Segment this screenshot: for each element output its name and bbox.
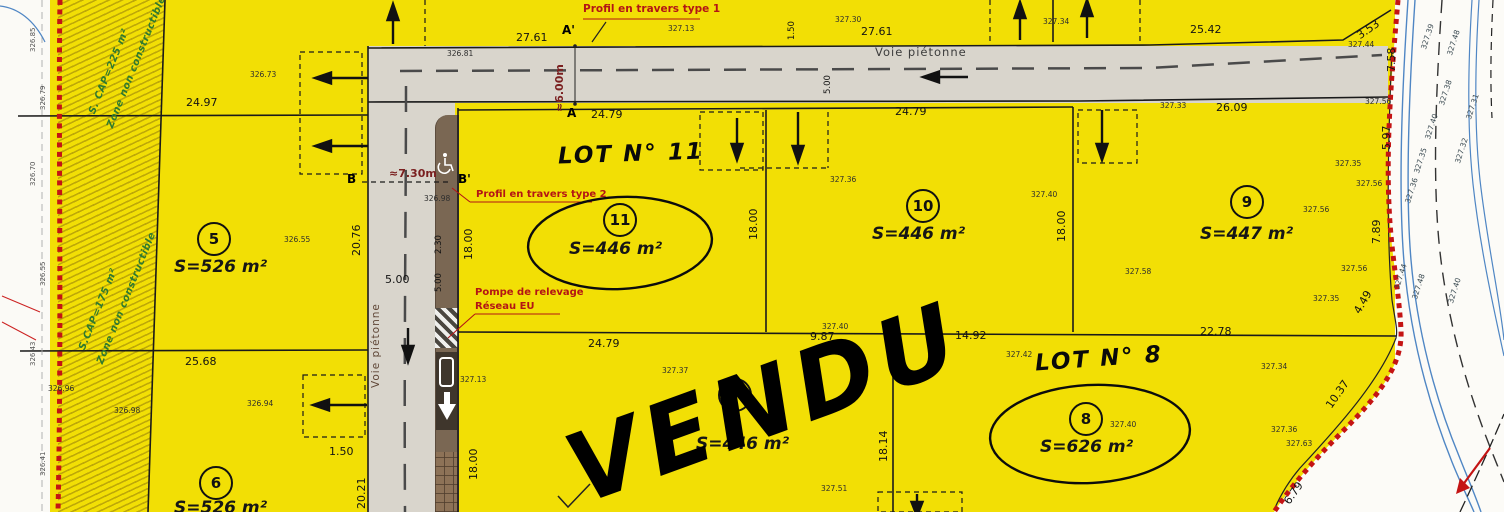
dim-label: 24.79 bbox=[895, 106, 927, 117]
dim-label: 27.61 bbox=[516, 32, 548, 43]
spot-elevation: 327.34 bbox=[1043, 18, 1069, 26]
road-name-horizontal: Voie piétonne bbox=[875, 47, 967, 59]
dim-label: 5.00 bbox=[435, 273, 444, 292]
margin-elevation: 326.41 bbox=[40, 452, 47, 477]
dim-label: 20.21 bbox=[356, 478, 367, 510]
spot-elevation: 327.51 bbox=[821, 485, 847, 493]
spot-elevation: 327.40 bbox=[1031, 191, 1057, 199]
dim-label: 1.50 bbox=[329, 446, 354, 457]
lot-callout-11: LOT N° 11 bbox=[558, 138, 705, 169]
dim-label: 24.79 bbox=[591, 109, 623, 120]
dim-label: 26.09 bbox=[1216, 102, 1248, 113]
pump-note-line2: Réseau EU bbox=[475, 302, 535, 312]
dim-label: 18.00 bbox=[748, 209, 759, 241]
dim-label: 24.79 bbox=[588, 338, 620, 349]
dim-label: 7.89 bbox=[1371, 220, 1382, 245]
lot-area-9: S=447 m² bbox=[1200, 224, 1293, 244]
point-label-b-prime: B' bbox=[458, 173, 471, 185]
lot-area-11: S=446 m² bbox=[569, 239, 662, 259]
lot-area-8: S=626 m² bbox=[1040, 437, 1133, 457]
spot-elevation: 327.56 bbox=[1303, 206, 1329, 214]
spot-elevation: 327.35 bbox=[1313, 295, 1339, 303]
dim-label: 25.42 bbox=[1190, 24, 1222, 35]
dim-label: 18.00 bbox=[463, 229, 474, 261]
spot-elevation: 327.63 bbox=[1286, 440, 1312, 448]
spot-elevation: 326.81 bbox=[447, 50, 473, 58]
dim-label: 18.14 bbox=[878, 431, 889, 463]
lot-number-5: 5 bbox=[197, 222, 231, 256]
pump-icon bbox=[438, 358, 456, 420]
point-label-a-prime: A' bbox=[562, 24, 575, 36]
dim-label: ≈7.30m bbox=[389, 168, 437, 179]
spot-elevation: 327.44 bbox=[1348, 41, 1374, 49]
dim-label: 25.68 bbox=[185, 356, 217, 367]
left-margin-lines bbox=[0, 0, 45, 512]
spot-elevation: 327.13 bbox=[668, 25, 694, 33]
margin-elevation: 326.43 bbox=[30, 342, 37, 367]
spot-elevation: 326.96 bbox=[48, 385, 74, 393]
section-line-a bbox=[573, 22, 606, 106]
subdivision-plan: 24.97 25.68 27.61 24.79 27.61 25.42 26.0… bbox=[0, 0, 1504, 512]
lot-area-5: S=526 m² bbox=[174, 257, 267, 277]
pump-note-line1: Pompe de relevage bbox=[475, 288, 584, 298]
spot-elevation: 327.34 bbox=[1261, 363, 1287, 371]
spot-elevation: 326.94 bbox=[247, 400, 273, 408]
spot-elevation: 327.56 bbox=[1356, 180, 1382, 188]
road-name-vertical: Voie piétonne bbox=[371, 303, 382, 388]
dim-label: ≈6.00m bbox=[554, 64, 565, 112]
spot-elevation: 326.98 bbox=[424, 195, 450, 203]
margin-elevation: 326.70 bbox=[30, 162, 37, 187]
dim-label: 18.00 bbox=[1056, 211, 1067, 243]
spot-elevation: 327.33 bbox=[1160, 102, 1186, 110]
dim-label: 7.58 bbox=[1386, 48, 1397, 73]
dim-label: 24.97 bbox=[186, 97, 218, 108]
spot-elevation: 327.36 bbox=[1271, 426, 1297, 434]
spot-elevation: 326.55 bbox=[284, 236, 310, 244]
margin-elevation: 326.85 bbox=[30, 28, 37, 53]
lot-number-11: 11 bbox=[603, 203, 637, 237]
spot-elevation: 326.73 bbox=[250, 71, 276, 79]
wheelchair-icon bbox=[438, 153, 453, 173]
spot-elevation: 327.56 bbox=[1365, 98, 1391, 106]
spot-elevation: 327.13 bbox=[460, 376, 486, 384]
dim-label: 18.00 bbox=[468, 449, 479, 481]
dim-label: 5.00 bbox=[385, 274, 410, 285]
spot-elevation: 327.35 bbox=[1335, 160, 1361, 168]
spot-elevation: 327.30 bbox=[835, 16, 861, 24]
margin-elevation: 326.79 bbox=[40, 86, 47, 111]
point-label-b: B bbox=[347, 173, 356, 185]
spot-elevation: 327.56 bbox=[1341, 265, 1367, 273]
dim-label: 27.61 bbox=[861, 26, 893, 37]
dim-label: 22.78 bbox=[1200, 326, 1232, 337]
profile-note-2: Profil en travers type 2 bbox=[476, 190, 607, 200]
lot-area-10: S=446 m² bbox=[872, 224, 965, 244]
profile-note-1: Profil en travers type 1 bbox=[583, 4, 720, 15]
dim-label: 5.00 bbox=[824, 75, 833, 94]
dim-label: 2.30 bbox=[435, 235, 444, 254]
spot-elevation: 326.98 bbox=[114, 407, 140, 415]
spot-elevation: 327.58 bbox=[1125, 268, 1151, 276]
lot-number-8: 8 bbox=[1069, 402, 1103, 436]
lot-number-10: 10 bbox=[906, 189, 940, 223]
spot-elevation: 327.36 bbox=[830, 176, 856, 184]
dim-label: 20.76 bbox=[351, 225, 362, 257]
point-label-a: A bbox=[567, 107, 576, 119]
margin-elevation: 326.55 bbox=[40, 262, 47, 287]
dim-label: 5.97 bbox=[1381, 126, 1392, 151]
lot-number-9: 9 bbox=[1230, 185, 1264, 219]
lot-area-6: S=526 m² bbox=[174, 498, 267, 512]
lot-number-6: 6 bbox=[199, 466, 233, 500]
dim-label: 1.50 bbox=[788, 21, 797, 40]
spot-elevation: 327.40 bbox=[1110, 421, 1136, 429]
